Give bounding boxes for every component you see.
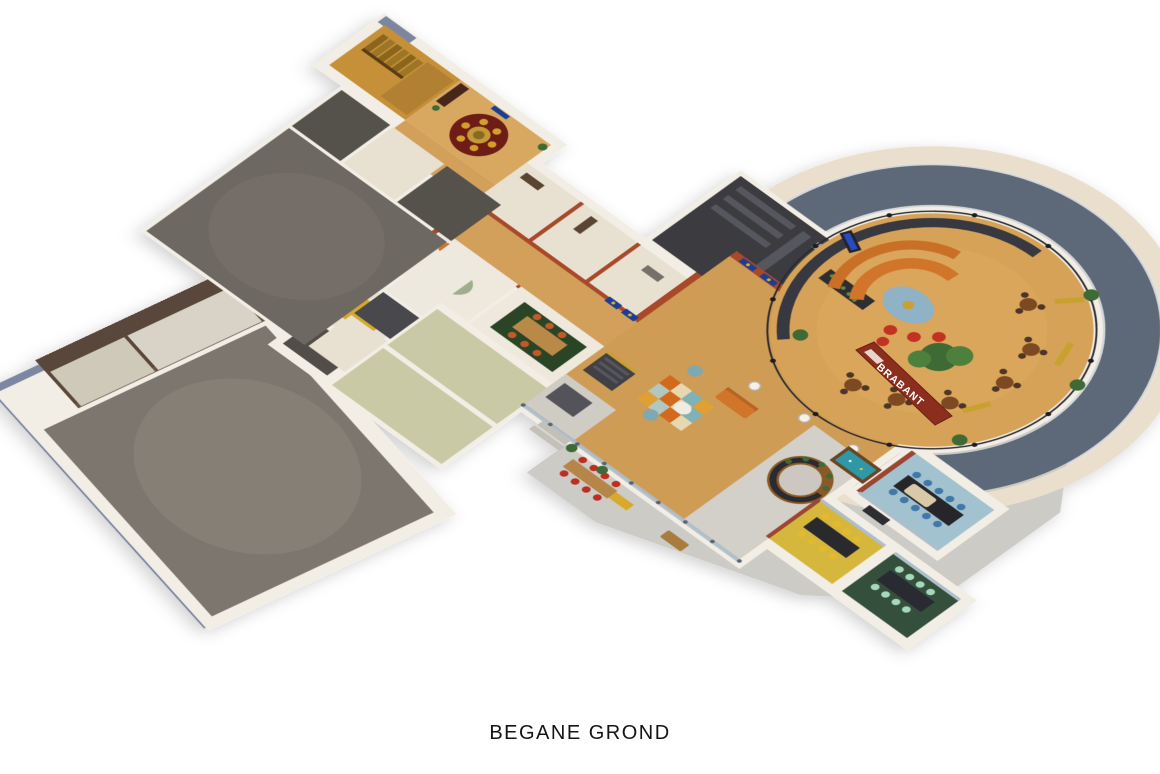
floor-caption: BEGANE GROND [489, 722, 670, 744]
floorplan-rendering: BRABANT BEGANE GROND [0, 0, 1160, 774]
isometric-building [0, 0, 1160, 774]
floorplan-page: BRABANT BEGANE GROND [0, 0, 1160, 774]
